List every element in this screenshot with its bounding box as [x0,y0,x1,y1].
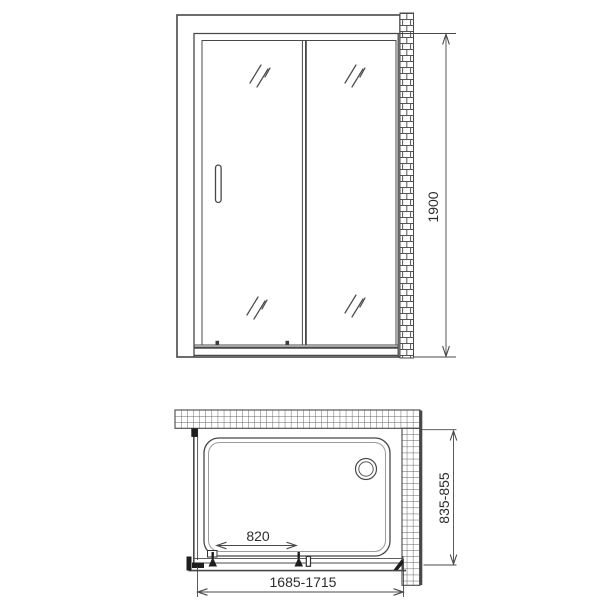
door-frame [194,34,398,358]
rail-stop-left [216,341,220,346]
plan-view [175,410,457,597]
shower-tray [204,438,390,556]
rail-stop-right [286,341,290,346]
wall-right-section [402,428,420,585]
glass-mark [247,297,267,319]
drawing-canvas [0,0,600,600]
panel-divider [302,41,306,346]
corner-bracket-left-foot [192,563,204,569]
door-opening-dimension-label: 820 [238,528,278,544]
wall-top-section [175,410,420,428]
glass-mark [345,65,365,87]
depth-dimension-label: 835-855 [436,463,452,533]
wall-bracket-top [191,428,197,437]
width-dimension-label: 1685-1715 [258,574,348,590]
corner-bracket-left [187,557,192,571]
side-panel-profile [191,428,197,566]
glass-mark [250,65,270,87]
technical-drawing: 1900 820 1685-1715 835-855 [0,0,600,600]
height-dimension-label: 1900 [425,177,441,237]
front-elevation [177,13,456,358]
wall-section-brick [400,13,414,358]
glass-mark [345,295,365,317]
door-handle [216,165,222,203]
opening-outline [177,15,400,357]
bottom-rail [194,341,398,356]
